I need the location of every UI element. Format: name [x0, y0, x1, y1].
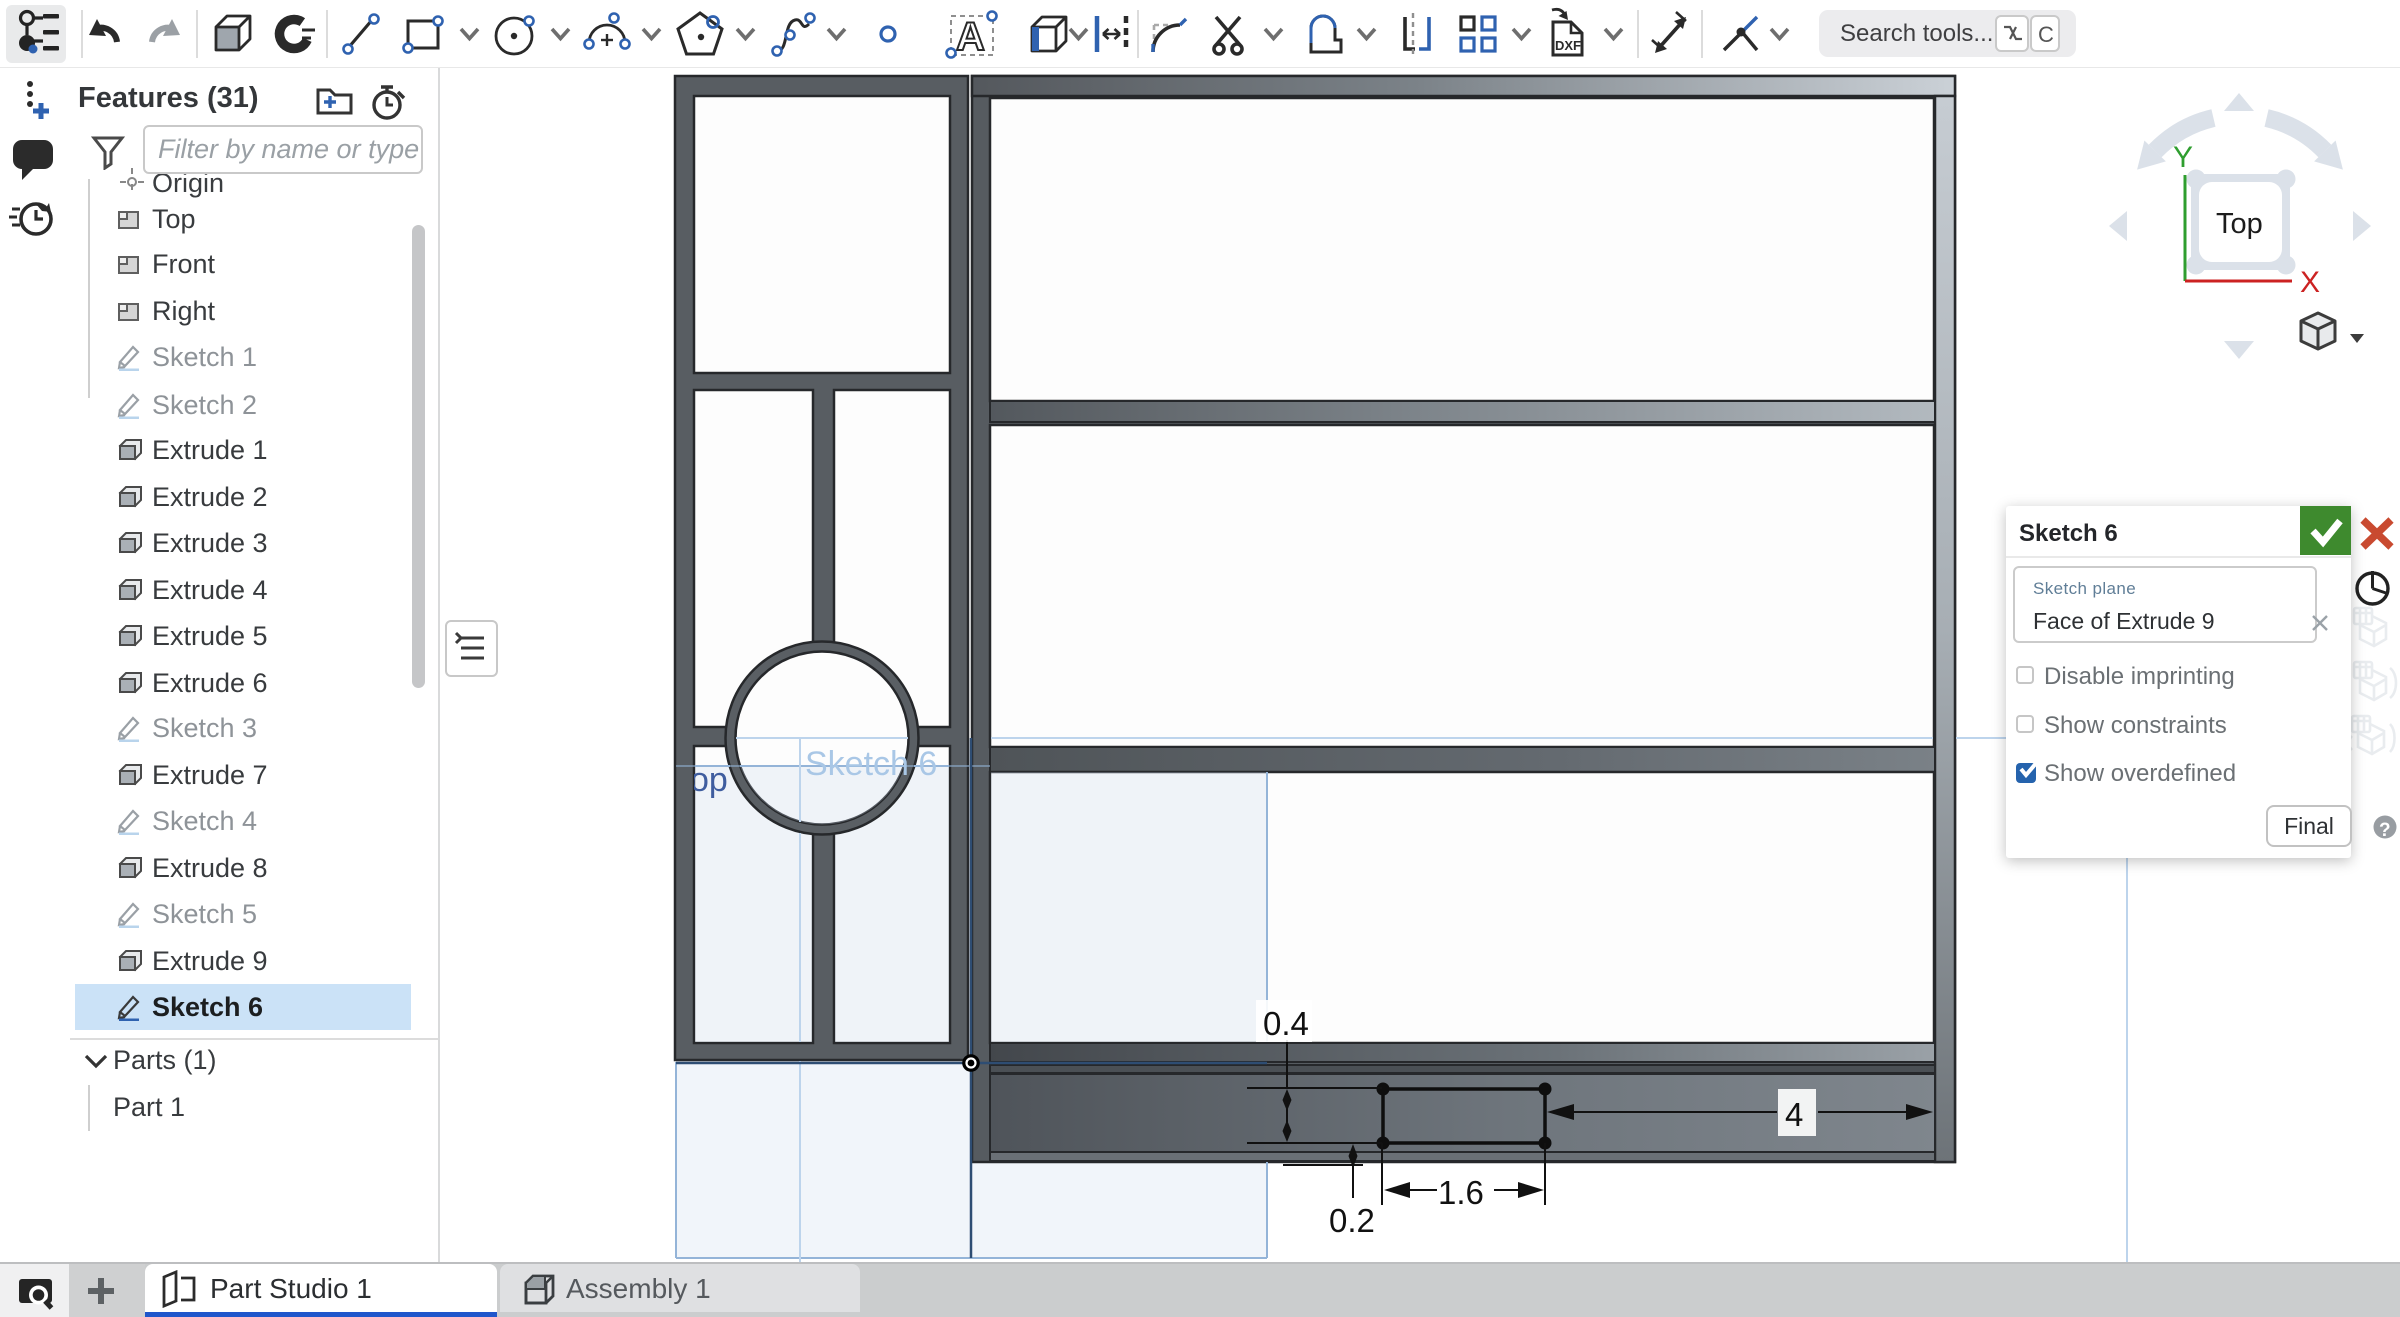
svg-text:Sketch 6: Sketch 6 — [805, 745, 937, 783]
svg-text:X: X — [2300, 266, 2320, 299]
svg-text:4: 4 — [1785, 1096, 1803, 1133]
svg-text:0.2: 0.2 — [1329, 1202, 1375, 1239]
svg-text:?: ? — [2379, 820, 2391, 841]
svg-text:Search tools...: Search tools... — [1840, 20, 1993, 47]
svg-text:1.6: 1.6 — [1438, 1174, 1484, 1211]
svg-text:0.4: 0.4 — [1263, 1005, 1309, 1042]
svg-text:C: C — [2038, 22, 2054, 47]
svg-text:A: A — [956, 15, 985, 59]
svg-text:Y: Y — [2173, 141, 2193, 174]
svg-text:DXF: DXF — [1555, 38, 1581, 53]
svg-text:Top: Top — [2216, 208, 2263, 240]
